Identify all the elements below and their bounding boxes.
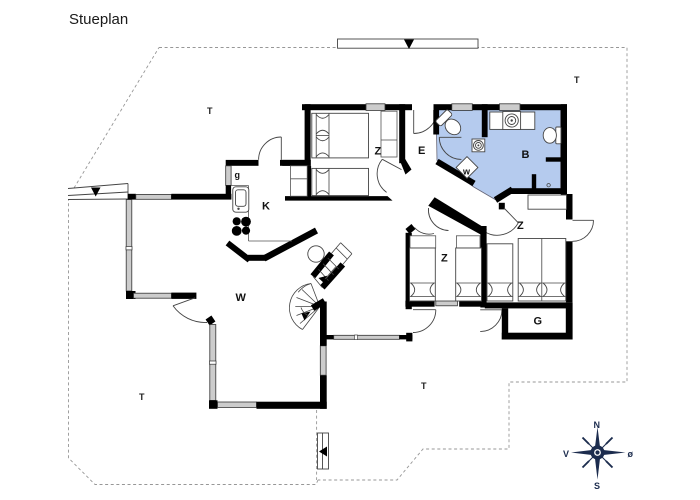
svg-text:T: T: [574, 75, 580, 85]
svg-text:g: g: [235, 170, 241, 180]
svg-text:N: N: [594, 420, 601, 430]
svg-text:G: G: [534, 316, 543, 328]
svg-text:ø: ø: [628, 449, 634, 459]
svg-text:S: S: [594, 481, 600, 491]
svg-text:T: T: [139, 392, 145, 402]
svg-text:Z: Z: [375, 146, 382, 158]
svg-text:B: B: [522, 149, 530, 161]
svg-text:Z: Z: [517, 220, 524, 232]
svg-text:T: T: [207, 106, 213, 116]
svg-text:K: K: [262, 201, 270, 213]
svg-text:w: w: [462, 167, 471, 177]
svg-text:Z: Z: [441, 253, 448, 265]
svg-text:W: W: [236, 292, 247, 304]
svg-text:E: E: [418, 145, 425, 157]
svg-text:T: T: [421, 381, 427, 391]
svg-text:V: V: [563, 449, 569, 459]
svg-text:Stueplan: Stueplan: [69, 11, 128, 28]
